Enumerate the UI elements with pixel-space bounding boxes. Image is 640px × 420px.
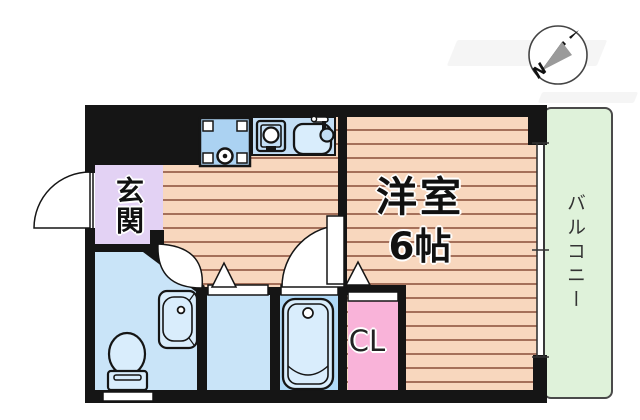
- toilet-icon: [108, 333, 147, 390]
- washbasin-icon: [159, 291, 197, 348]
- folding-door-mark: [212, 263, 236, 287]
- main-room-size-label: 6帖: [348, 216, 492, 270]
- hall-door-arc: [282, 216, 344, 287]
- toilet-window: [103, 392, 153, 401]
- floorplan-canvas: N 玄関 洋室 6帖 CL バルコニー: [0, 0, 640, 420]
- balcony-label: バルコニー: [562, 193, 589, 343]
- bathtub-icon: [283, 299, 333, 389]
- entrance-label: 玄関: [102, 171, 154, 241]
- stove-icon: [257, 121, 285, 151]
- balcony-window: [532, 143, 549, 357]
- main-room-label: 洋室: [348, 163, 492, 223]
- floorplan-drawing: N: [0, 0, 640, 420]
- washing-machine-icon: [200, 118, 250, 166]
- compass-icon: N: [528, 26, 587, 84]
- entrance-door-arc: [34, 172, 94, 228]
- washroom: [207, 295, 270, 392]
- closet-label: CL: [340, 324, 394, 358]
